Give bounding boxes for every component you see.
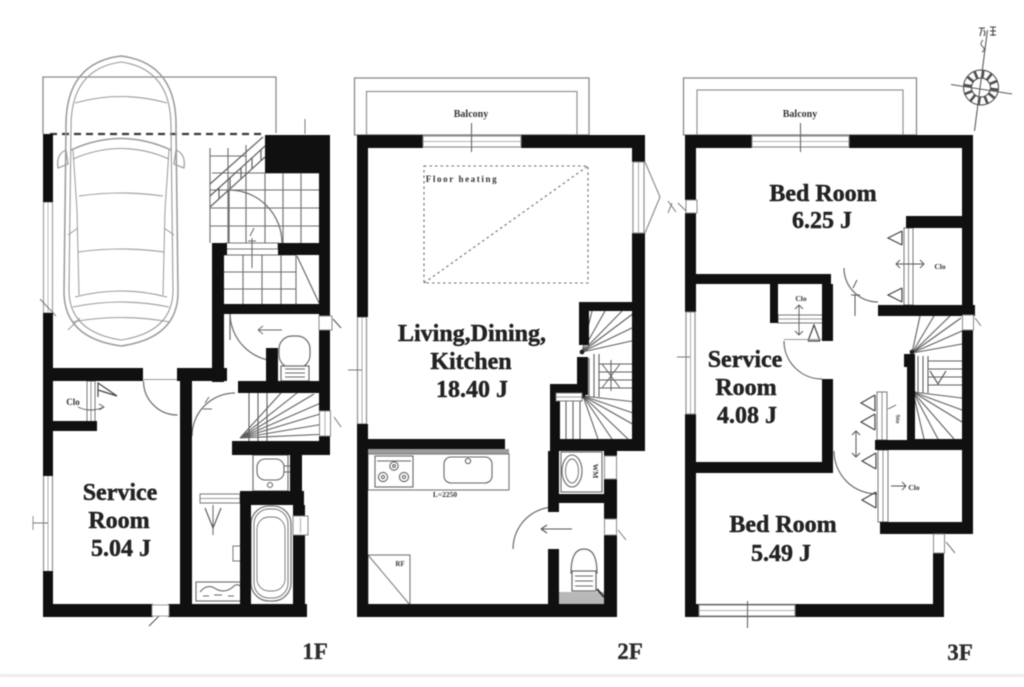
svg-text:Clo: Clo xyxy=(795,294,807,303)
svg-text:Balcony: Balcony xyxy=(454,109,488,120)
svg-text:5.04 J: 5.04 J xyxy=(91,536,151,562)
svg-text:Clo: Clo xyxy=(934,262,946,271)
svg-text:Room: Room xyxy=(88,508,149,534)
svg-text:Kitchen: Kitchen xyxy=(430,349,511,375)
svg-text:Clo: Clo xyxy=(908,483,920,492)
svg-text:6.25 J: 6.25 J xyxy=(792,208,852,234)
svg-text:Service: Service xyxy=(83,480,158,506)
svg-text:Living,Dining,: Living,Dining, xyxy=(398,321,546,347)
svg-text:RF: RF xyxy=(395,560,404,568)
svg-text:3F: 3F xyxy=(947,640,973,665)
svg-text:2F: 2F xyxy=(617,639,643,664)
svg-text:WM: WM xyxy=(591,464,600,479)
svg-text:5.49 J: 5.49 J xyxy=(751,541,811,567)
svg-text:Clo: Clo xyxy=(66,397,80,407)
svg-text:Floor heating: Floor heating xyxy=(426,174,498,184)
svg-text:Sto: Sto xyxy=(894,414,901,423)
svg-text:Bed Room: Bed Room xyxy=(769,181,876,207)
svg-text:1F: 1F xyxy=(302,639,328,664)
svg-text:Room: Room xyxy=(715,375,776,401)
svg-text:18.40 J: 18.40 J xyxy=(436,377,508,403)
svg-text:Bed Room: Bed Room xyxy=(729,512,836,538)
svg-text:L=2250: L=2250 xyxy=(433,490,458,499)
svg-text:Service: Service xyxy=(708,347,783,373)
svg-text:Balcony: Balcony xyxy=(783,109,817,120)
svg-text:4.08 J: 4.08 J xyxy=(717,403,777,429)
